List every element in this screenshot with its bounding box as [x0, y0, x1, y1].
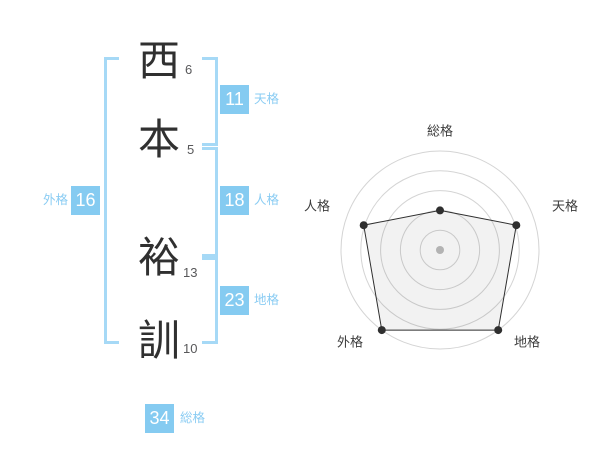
gaikaku-score-box: 16 — [71, 186, 100, 215]
jinkaku-score-box: 18 — [220, 186, 249, 215]
stroke-count-1: 6 — [185, 63, 192, 76]
radar-axis-label: 天格 — [552, 198, 578, 213]
stroke-count-3: 13 — [183, 266, 197, 279]
radar-point — [378, 326, 386, 334]
tenkaku-label: 天格 — [254, 92, 279, 106]
gaikaku-bracket — [104, 57, 119, 344]
name-char-3: 裕 — [137, 237, 181, 279]
chikaku-score-box: 23 — [220, 286, 249, 315]
radar-point — [436, 206, 444, 214]
radar-series-polygon — [364, 210, 517, 330]
soukaku-label: 総格 — [180, 411, 205, 425]
gaikaku-label: 外格 — [38, 193, 68, 207]
stroke-count-2: 5 — [187, 143, 194, 156]
radar-axis-label: 地格 — [514, 334, 540, 349]
radar-axis-label: 人格 — [304, 198, 330, 213]
radar-axis-label: 外格 — [337, 334, 363, 349]
radar-axis-label: 総格 — [427, 123, 453, 138]
name-char-1: 西 — [137, 40, 181, 82]
radar-point — [360, 221, 368, 229]
name-fortune-screen: 西 本 裕 訓 6 5 13 10 外格 16 11 天格 18 人格 23 地… — [0, 0, 600, 470]
radar-point — [512, 221, 520, 229]
soukaku-score-box: 34 — [145, 404, 174, 433]
radar-chart: 総格天格地格外格人格 — [290, 100, 590, 400]
stroke-count-4: 10 — [183, 342, 197, 355]
radar-point — [494, 326, 502, 334]
jinkaku-bracket — [202, 147, 218, 257]
tenkaku-score-box: 11 — [220, 85, 249, 114]
name-char-2: 本 — [137, 119, 181, 161]
name-char-4: 訓 — [137, 320, 181, 362]
chikaku-label: 地格 — [254, 293, 279, 307]
tenkaku-bracket — [202, 57, 218, 146]
jinkaku-label: 人格 — [254, 193, 279, 207]
chikaku-bracket — [202, 257, 218, 344]
